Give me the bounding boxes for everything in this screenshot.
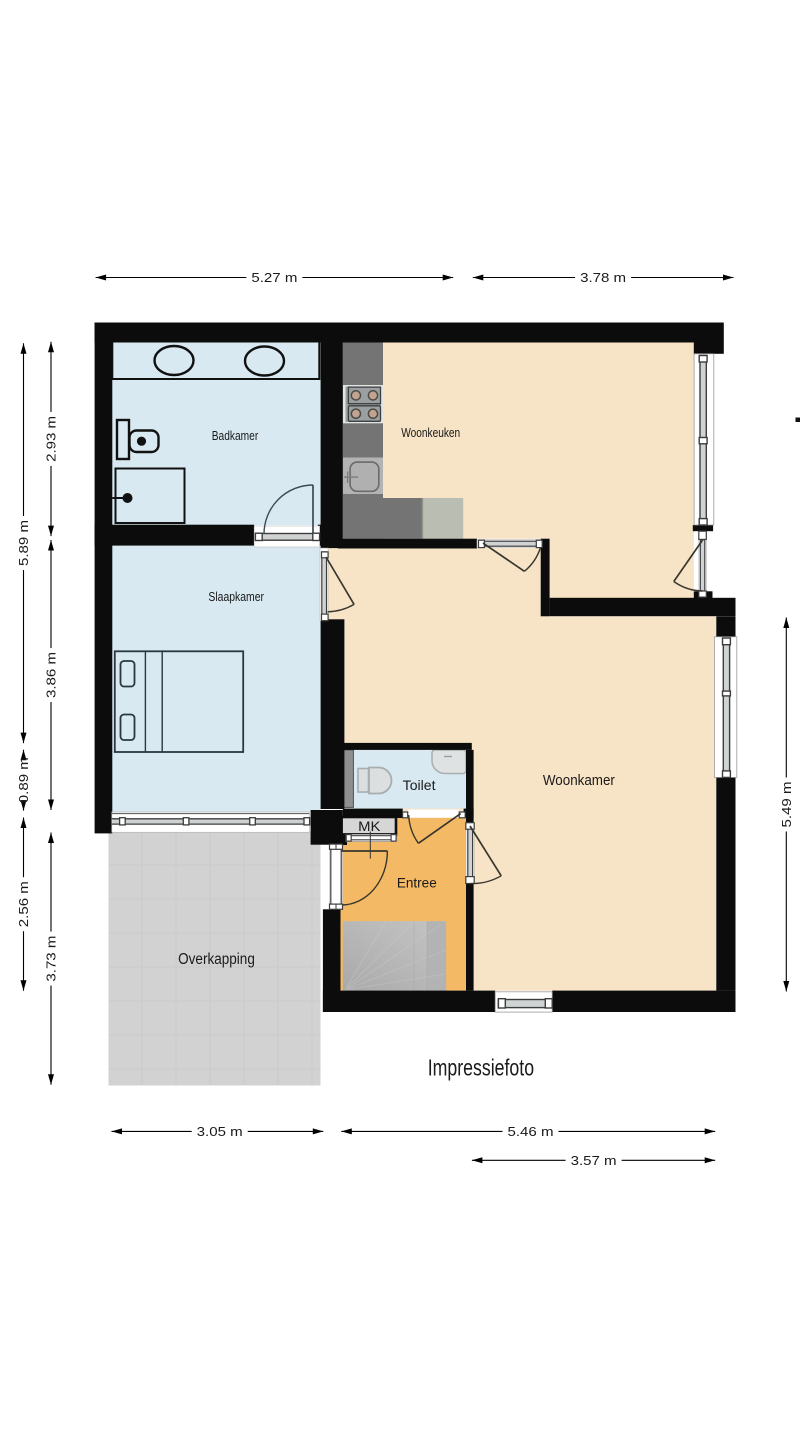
svg-text:5.89 m: 5.89 m (16, 520, 31, 566)
svg-text:Entree: Entree (397, 875, 437, 891)
svg-text:Slaapkamer: Slaapkamer (208, 589, 264, 604)
svg-text:2.56 m: 2.56 m (16, 881, 31, 927)
svg-text:3.73 m: 3.73 m (44, 936, 59, 982)
svg-text:3.78 m: 3.78 m (580, 270, 626, 285)
svg-text:5.27 m: 5.27 m (251, 270, 297, 285)
svg-text:3.57 m: 3.57 m (571, 1153, 617, 1168)
svg-text:MK: MK (358, 819, 380, 834)
svg-text:3.86 m: 3.86 m (44, 652, 59, 698)
svg-text:Impressiefoto: Impressiefoto (428, 1055, 534, 1081)
svg-text:2.93 m: 2.93 m (44, 416, 59, 462)
svg-text:Woonkeuken: Woonkeuken (401, 425, 460, 440)
svg-text:5.49 m: 5.49 m (779, 781, 794, 827)
svg-text:Toilet: Toilet (403, 778, 436, 793)
svg-text:Badkamer: Badkamer (212, 428, 259, 443)
svg-text:3.05 m: 3.05 m (197, 1124, 243, 1139)
svg-text:Overkapping: Overkapping (178, 951, 255, 968)
svg-text:5.46 m: 5.46 m (508, 1124, 554, 1139)
svg-text:Woonkamer: Woonkamer (543, 772, 615, 789)
svg-text:0.89 m: 0.89 m (16, 757, 31, 803)
